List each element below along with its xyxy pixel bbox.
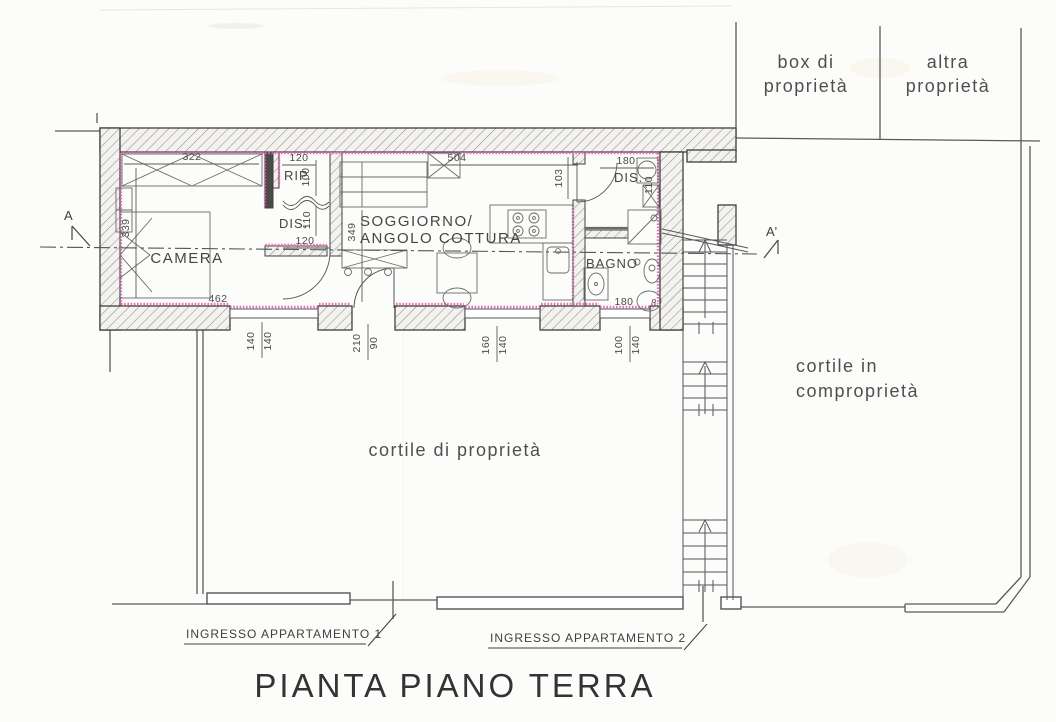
dim-dis1-right: 110 [301, 211, 313, 229]
dim-dis2-top: 180 [616, 155, 635, 167]
rip-curtain [283, 197, 329, 210]
entrance-label-1: INGRESSO APPARTAMENTO 1 [184, 614, 396, 646]
dim-win3-right: 140 [630, 335, 642, 354]
dim-sogg-left: 349 [346, 222, 358, 241]
courtyard-shared-label: cortile in [796, 356, 878, 376]
dim-dis2-right: 110 [643, 176, 655, 194]
sofa [340, 162, 427, 207]
section-marker-a-prime [764, 240, 778, 258]
sideboard [342, 250, 407, 276]
dim-sogg-right: 103 [553, 168, 565, 187]
dim-rip-top: 120 [289, 152, 308, 164]
wardrobe [116, 154, 262, 232]
door-leaf [265, 152, 273, 208]
dim-win3-left: 100 [613, 335, 625, 354]
entrance-door [354, 268, 394, 308]
gate-apartment-1 [207, 593, 350, 604]
dim-win2-left: 160 [480, 335, 492, 354]
dim-camera-bottom: 462 [208, 293, 227, 305]
entrance-2-text: INGRESSO APPARTAMENTO 2 [490, 631, 686, 645]
section-a-prime-label: A' [766, 224, 777, 239]
window-2 [465, 309, 540, 318]
dim-camera-top: 322 [182, 151, 201, 163]
courtyard-shared-label-2: comproprietà [796, 381, 919, 401]
other-property-label: altra [927, 52, 970, 72]
other-property-label-2: proprietà [906, 76, 991, 96]
entrance-label-2: INGRESSO APPARTAMENTO 2 [488, 624, 707, 650]
window-3 [600, 309, 650, 318]
floor-plan-drawing: box di proprietà altra proprietà cortile… [0, 0, 1056, 722]
garage-box-label: box di [777, 52, 834, 72]
dim-camera-left: 339 [120, 218, 132, 237]
dim-win1-left: 140 [245, 331, 257, 350]
window-1 [230, 309, 318, 318]
garage-box-label-2: proprietà [764, 76, 849, 96]
courtyard-private-label: cortile di proprietà [368, 440, 541, 460]
room-camera-label: CAMERA [150, 250, 223, 267]
dim-rip-right: 100 [300, 167, 312, 186]
dining-table [437, 238, 477, 308]
dim-win2-right: 140 [497, 335, 509, 354]
gate-apartment-2 [437, 597, 741, 609]
section-a-label: A [64, 208, 73, 223]
shower [585, 210, 661, 244]
dim-door-right: 90 [368, 337, 380, 350]
room-soggiorno-label: SOGGIORNO/ [360, 213, 473, 230]
entrance-1-text: INGRESSO APPARTAMENTO 1 [186, 627, 382, 641]
room-dis2-label: DIS. [614, 170, 643, 185]
section-marker-a [72, 226, 90, 246]
dim-door-left: 210 [351, 333, 363, 352]
floor-plan-scan: box di proprietà altra proprietà cortile… [0, 0, 1056, 722]
room-bagno-label: BAGNO [586, 256, 638, 271]
room-soggiorno-label-2: ANGOLO COTTURA [360, 230, 522, 247]
plan-title: PIANTA PIANO TERRA [254, 667, 655, 704]
dim-sogg-top: 504 [447, 152, 466, 164]
dim-bagno-bottom: 180 [614, 296, 633, 308]
sink [547, 247, 569, 273]
gate-pillar [721, 597, 741, 609]
dim-dis1-door: 120 [295, 235, 314, 247]
dim-win1-right: 140 [262, 331, 274, 350]
